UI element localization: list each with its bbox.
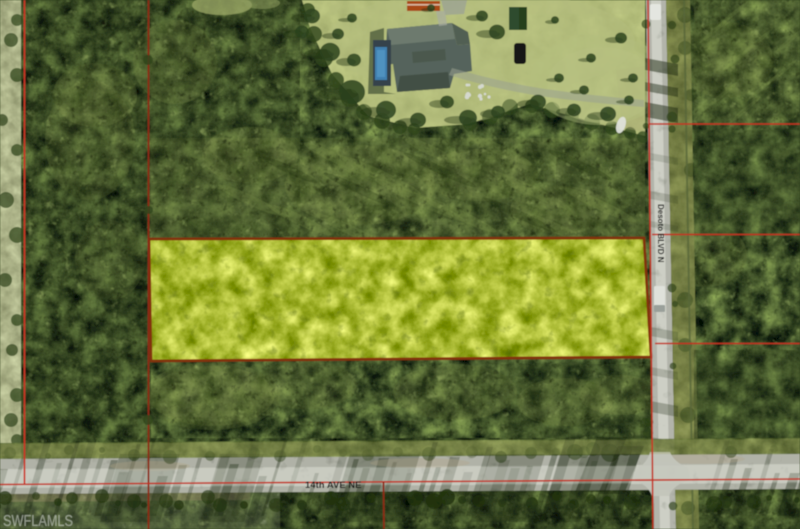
svg-text:SWFLAMLS: SWFLAMLS	[3, 513, 73, 529]
svg-text:Desoto BLVD N: Desoto BLVD N	[656, 204, 665, 263]
svg-text:14th AVE NE: 14th AVE NE	[305, 480, 362, 491]
